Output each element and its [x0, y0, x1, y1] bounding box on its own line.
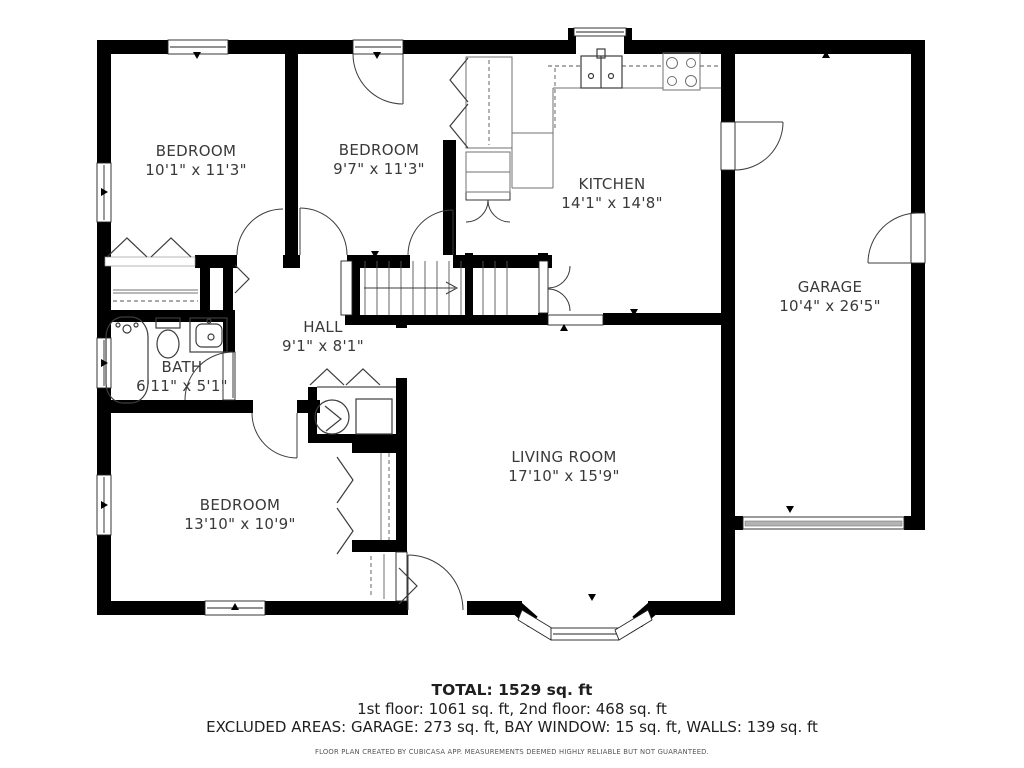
footer-floor-areas: 1st floor: 1061 sq. ft, 2nd floor: 468 s…	[0, 700, 1024, 718]
room-label-bedroom-2: BEDROOM9'7" x 11'3"	[333, 141, 425, 179]
room-dimensions: 14'1" x 14'8"	[561, 194, 663, 213]
washer-icon	[315, 400, 349, 434]
room-name: LIVING ROOM	[508, 448, 619, 467]
room-dimensions: 17'10" x 15'9"	[508, 467, 619, 486]
room-name: BEDROOM	[333, 141, 425, 160]
floor-plan-page: BEDROOM10'1" x 11'3"BEDROOM9'7" x 11'3"K…	[0, 0, 1024, 768]
bathroom-sink-icon	[190, 318, 227, 352]
room-dimensions: 10'1" x 11'3"	[145, 161, 247, 180]
room-label-hall: HALL9'1" x 8'1"	[282, 318, 364, 356]
room-name: HALL	[282, 318, 364, 337]
laundry-fixtures	[310, 369, 396, 434]
room-label-living-room: LIVING ROOM17'10" x 15'9"	[508, 448, 619, 486]
room-dimensions: 13'10" x 10'9"	[184, 515, 295, 534]
refrigerator-icon	[466, 57, 512, 148]
garage-door	[743, 517, 904, 529]
footer-excluded-areas: EXCLUDED AREAS: GARAGE: 273 sq. ft, BAY …	[0, 718, 1024, 736]
room-label-bedroom-3: BEDROOM13'10" x 10'9"	[184, 496, 295, 534]
toilet-icon	[156, 318, 180, 358]
room-label-kitchen: KITCHEN14'1" x 14'8"	[561, 175, 663, 213]
bay-window	[518, 610, 652, 640]
room-label-bedroom-1: BEDROOM10'1" x 11'3"	[145, 142, 247, 180]
interior-walls	[97, 54, 727, 552]
room-name: GARAGE	[779, 278, 881, 297]
room-name: KITCHEN	[561, 175, 663, 194]
room-label-garage: GARAGE10'4" x 26'5"	[779, 278, 881, 316]
sink-icon	[581, 49, 622, 88]
floor-plan-canvas	[0, 0, 1024, 660]
room-name: BATH	[136, 358, 228, 377]
footer-disclaimer: FLOOR PLAN CREATED BY CUBICASA APP. MEAS…	[0, 748, 1024, 756]
room-dimensions: 6'11" x 5'1"	[136, 377, 228, 396]
room-dimensions: 10'4" x 26'5"	[779, 297, 881, 316]
footer-total-area: TOTAL: 1529 sq. ft	[0, 681, 1024, 699]
room-label-bath: BATH6'11" x 5'1"	[136, 358, 228, 396]
kitchen-fixtures	[450, 49, 721, 192]
room-name: BEDROOM	[184, 496, 295, 515]
room-dimensions: 9'1" x 8'1"	[282, 337, 364, 356]
staircase	[364, 261, 507, 315]
room-dimensions: 9'7" x 11'3"	[333, 160, 425, 179]
stair-direction-arrow	[364, 282, 457, 294]
dryer-icon	[356, 399, 392, 434]
room-name: BEDROOM	[145, 142, 247, 161]
stove-icon	[663, 53, 700, 90]
